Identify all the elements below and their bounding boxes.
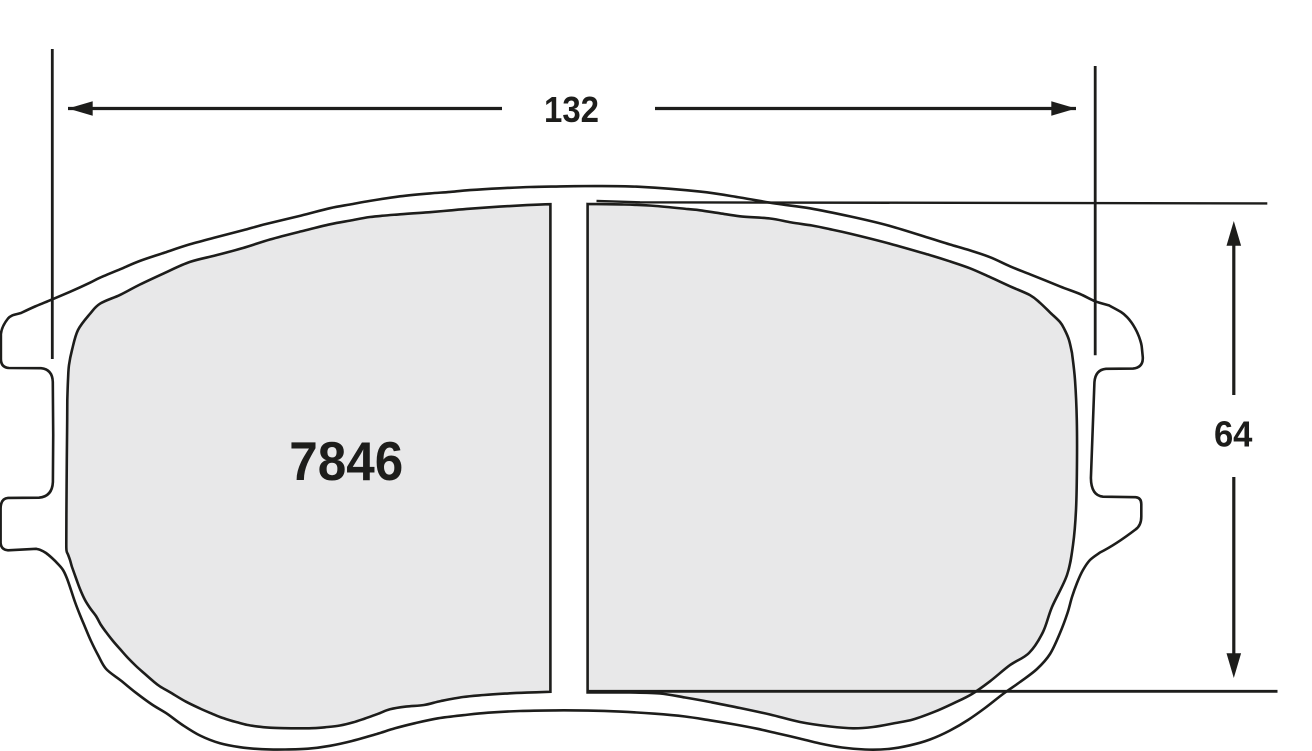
svg-text:64: 64 <box>1214 413 1253 454</box>
svg-text:132: 132 <box>544 89 599 130</box>
svg-text:7846: 7846 <box>289 431 403 492</box>
